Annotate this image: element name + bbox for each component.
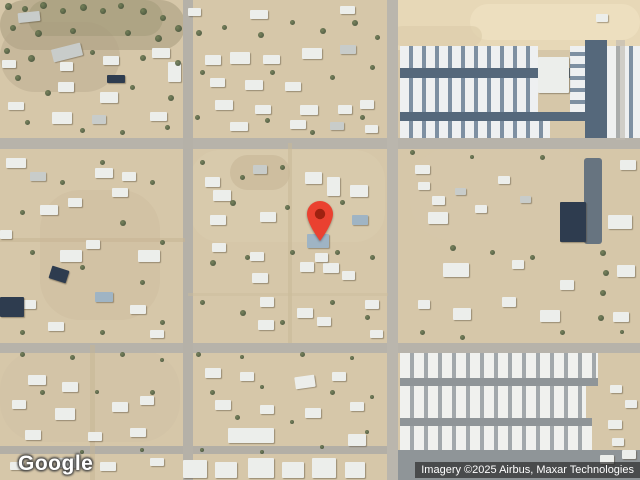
building xyxy=(2,60,16,68)
tree xyxy=(265,118,270,123)
building xyxy=(443,263,469,277)
tree xyxy=(290,20,295,25)
building xyxy=(138,250,160,262)
building xyxy=(560,280,574,290)
mobile-home-park-row xyxy=(400,46,538,68)
building xyxy=(122,172,136,181)
building xyxy=(290,120,306,129)
tree xyxy=(245,255,250,260)
tree xyxy=(450,245,456,251)
tree xyxy=(175,60,181,66)
building xyxy=(210,215,226,225)
building xyxy=(365,125,378,133)
tree xyxy=(352,20,358,26)
building xyxy=(230,122,248,131)
tree xyxy=(160,240,165,245)
building xyxy=(282,462,304,478)
mobile-home-park-row xyxy=(585,40,607,143)
mobile-home-park-row xyxy=(400,386,586,418)
building xyxy=(540,310,560,322)
building xyxy=(255,105,271,114)
building xyxy=(55,408,75,420)
mobile-home-park-row xyxy=(400,353,598,378)
building xyxy=(263,55,280,64)
building xyxy=(245,80,263,90)
tree xyxy=(200,160,205,165)
building xyxy=(612,438,624,446)
building xyxy=(210,78,225,87)
building xyxy=(205,368,221,378)
building xyxy=(140,396,154,405)
tree xyxy=(365,430,369,434)
building xyxy=(415,165,430,174)
building xyxy=(608,215,632,229)
tree xyxy=(28,55,35,62)
tree xyxy=(290,250,295,255)
building xyxy=(150,458,164,466)
building xyxy=(365,300,379,309)
tree xyxy=(222,25,227,30)
map-pin-icon xyxy=(306,200,334,242)
tree xyxy=(90,50,95,55)
tree xyxy=(130,85,135,90)
building xyxy=(370,330,383,338)
building xyxy=(455,188,466,195)
building xyxy=(68,198,82,207)
building xyxy=(60,62,73,71)
tree xyxy=(210,260,216,266)
tree xyxy=(80,265,85,270)
tree xyxy=(235,415,240,420)
building xyxy=(230,52,250,64)
building xyxy=(302,48,322,59)
building xyxy=(215,462,237,478)
building xyxy=(130,428,146,437)
tree xyxy=(200,70,205,75)
building xyxy=(305,408,321,418)
tree xyxy=(20,352,25,357)
building xyxy=(130,305,146,314)
building xyxy=(28,375,46,385)
tree xyxy=(420,330,425,335)
tree xyxy=(140,448,144,452)
road xyxy=(288,143,292,343)
tree xyxy=(200,300,205,305)
building xyxy=(350,402,364,411)
building xyxy=(112,402,128,412)
building xyxy=(613,312,629,322)
building xyxy=(625,400,637,408)
google-logo[interactable]: Google xyxy=(18,452,93,476)
building xyxy=(300,105,318,115)
road xyxy=(387,0,398,480)
tree xyxy=(240,310,246,316)
tree xyxy=(4,48,10,54)
building xyxy=(498,176,510,184)
tree xyxy=(260,385,264,389)
tree xyxy=(60,8,66,14)
tree xyxy=(240,175,245,180)
building xyxy=(260,212,276,222)
building xyxy=(100,462,116,471)
map-canvas[interactable]: Google Imagery ©2025 Airbus, Maxar Techn… xyxy=(0,0,640,480)
building xyxy=(502,297,516,307)
tree xyxy=(365,315,370,320)
tree xyxy=(258,32,264,38)
building xyxy=(112,188,128,197)
tree xyxy=(240,355,244,359)
building xyxy=(300,262,314,272)
tree xyxy=(560,330,565,335)
tree xyxy=(160,15,166,21)
tree xyxy=(330,75,335,80)
tree xyxy=(160,358,164,362)
tree xyxy=(490,250,495,255)
building xyxy=(418,300,430,309)
building xyxy=(340,45,356,54)
building xyxy=(152,48,170,58)
building xyxy=(252,273,268,283)
tree xyxy=(125,30,131,36)
building xyxy=(258,320,274,330)
tree xyxy=(45,90,51,96)
tree xyxy=(22,6,28,12)
tree xyxy=(5,3,12,10)
building xyxy=(205,55,221,65)
building xyxy=(345,462,365,478)
terrain-patch xyxy=(28,0,163,36)
mobile-home-park-row xyxy=(400,78,538,112)
tree xyxy=(196,30,202,36)
tree xyxy=(80,128,85,133)
tree xyxy=(620,330,624,334)
building xyxy=(40,205,58,215)
building xyxy=(103,56,119,65)
building xyxy=(330,122,344,130)
building xyxy=(294,375,315,390)
tree xyxy=(120,130,125,135)
building xyxy=(297,308,313,318)
building xyxy=(58,82,74,92)
building xyxy=(305,172,322,184)
tree xyxy=(210,390,215,395)
building xyxy=(150,112,167,121)
building xyxy=(350,185,368,197)
tree xyxy=(375,35,380,40)
building xyxy=(205,177,220,187)
tree xyxy=(60,180,65,185)
map-pin[interactable] xyxy=(306,200,334,242)
tree xyxy=(320,445,324,449)
building xyxy=(312,458,336,478)
building xyxy=(327,177,340,196)
mobile-home-park-row xyxy=(400,418,592,426)
building xyxy=(538,57,569,93)
tree xyxy=(410,150,415,155)
building xyxy=(323,263,339,273)
tree xyxy=(540,155,545,160)
tree xyxy=(168,95,174,101)
road xyxy=(188,293,388,296)
tree xyxy=(310,130,315,135)
building xyxy=(560,202,586,242)
tree xyxy=(10,25,16,31)
tree xyxy=(140,55,146,61)
building xyxy=(0,230,12,239)
tree xyxy=(470,155,474,159)
building xyxy=(12,400,26,409)
mobile-home-park-row xyxy=(400,112,587,121)
tree xyxy=(175,25,182,32)
tree xyxy=(70,28,76,34)
tree xyxy=(260,450,264,454)
tree xyxy=(140,280,145,285)
building xyxy=(428,212,448,224)
tree xyxy=(20,210,25,215)
tree xyxy=(120,220,126,226)
tree xyxy=(155,35,162,42)
tree xyxy=(196,352,201,357)
building xyxy=(315,253,328,262)
tree xyxy=(140,8,147,15)
building xyxy=(95,292,113,302)
tree xyxy=(100,8,106,14)
building xyxy=(250,10,268,19)
tree xyxy=(35,30,42,37)
building xyxy=(213,190,231,201)
road xyxy=(0,138,640,149)
road xyxy=(0,343,640,353)
building xyxy=(248,458,274,478)
tree xyxy=(165,125,170,130)
building xyxy=(215,400,231,410)
tree xyxy=(95,390,99,394)
building xyxy=(212,243,226,252)
tree xyxy=(280,320,285,325)
attribution-text: Imagery ©2025 Airbus, Maxar Technologies xyxy=(421,464,634,476)
mobile-home-park-row xyxy=(400,426,592,450)
building xyxy=(352,215,368,225)
building xyxy=(338,105,352,114)
mobile-home-park-row xyxy=(400,378,598,386)
tree xyxy=(100,160,105,165)
tree xyxy=(340,200,345,205)
tree xyxy=(230,200,236,206)
tree xyxy=(120,352,125,357)
building xyxy=(453,308,471,320)
tree xyxy=(460,335,465,340)
building xyxy=(360,100,374,109)
tree xyxy=(300,352,305,357)
building xyxy=(348,434,366,446)
tree xyxy=(25,120,30,125)
building xyxy=(622,450,636,459)
building xyxy=(240,372,254,381)
tree xyxy=(80,4,87,11)
road xyxy=(616,40,625,140)
building xyxy=(332,372,346,381)
building xyxy=(62,382,78,392)
tree xyxy=(335,250,340,255)
building xyxy=(30,172,46,181)
building xyxy=(317,317,331,326)
tree xyxy=(40,2,47,9)
tree xyxy=(320,28,326,34)
tree xyxy=(100,330,105,335)
tree xyxy=(370,65,375,70)
building xyxy=(92,115,106,124)
tree xyxy=(290,420,294,424)
building xyxy=(617,265,635,277)
tree xyxy=(270,70,275,75)
tree xyxy=(70,355,75,360)
building xyxy=(228,428,274,443)
building xyxy=(150,330,164,338)
tree xyxy=(330,390,335,395)
building xyxy=(620,160,636,170)
building xyxy=(86,240,100,249)
building xyxy=(253,165,267,174)
tree xyxy=(195,115,200,120)
building xyxy=(512,260,524,269)
mobile-home-park-row xyxy=(570,46,586,112)
building xyxy=(48,322,64,331)
tree xyxy=(20,330,25,335)
tree xyxy=(30,250,35,255)
building xyxy=(6,158,26,168)
terrain-patch xyxy=(392,26,482,46)
building xyxy=(188,8,201,16)
building xyxy=(52,112,72,124)
tree xyxy=(370,255,375,260)
building xyxy=(610,385,622,393)
building xyxy=(285,82,301,91)
tree xyxy=(530,255,535,260)
building xyxy=(8,102,24,110)
tree xyxy=(200,448,204,452)
tree xyxy=(600,290,606,296)
tree xyxy=(118,3,124,9)
tree xyxy=(285,205,290,210)
tree xyxy=(160,320,165,325)
building xyxy=(260,297,274,307)
building xyxy=(340,6,355,14)
pin-body xyxy=(307,201,333,241)
building xyxy=(25,430,41,440)
tree xyxy=(15,75,21,81)
tree xyxy=(370,395,374,399)
building xyxy=(95,168,113,178)
tree xyxy=(280,165,285,170)
pin-hole xyxy=(315,209,325,219)
building xyxy=(107,75,125,83)
attribution-bar: Imagery ©2025 Airbus, Maxar Technologies xyxy=(415,462,640,478)
building xyxy=(520,196,531,203)
tree xyxy=(40,390,45,395)
building xyxy=(475,205,487,213)
tree xyxy=(150,390,155,395)
tree xyxy=(603,270,609,276)
building xyxy=(260,405,274,414)
tree xyxy=(330,300,335,305)
building xyxy=(215,100,233,110)
building xyxy=(608,420,622,429)
building xyxy=(0,297,24,317)
tree xyxy=(600,250,606,256)
tree xyxy=(350,356,354,360)
tree xyxy=(150,180,155,185)
building xyxy=(432,196,445,205)
tree xyxy=(360,115,365,120)
tree xyxy=(598,315,604,321)
building xyxy=(100,92,118,103)
building xyxy=(250,252,264,261)
terrain-patch xyxy=(584,158,602,244)
building xyxy=(596,14,608,22)
building xyxy=(183,460,207,478)
building xyxy=(88,432,102,441)
building xyxy=(342,271,355,280)
building xyxy=(60,250,82,262)
terrain-patch xyxy=(470,4,640,40)
building xyxy=(418,182,430,190)
